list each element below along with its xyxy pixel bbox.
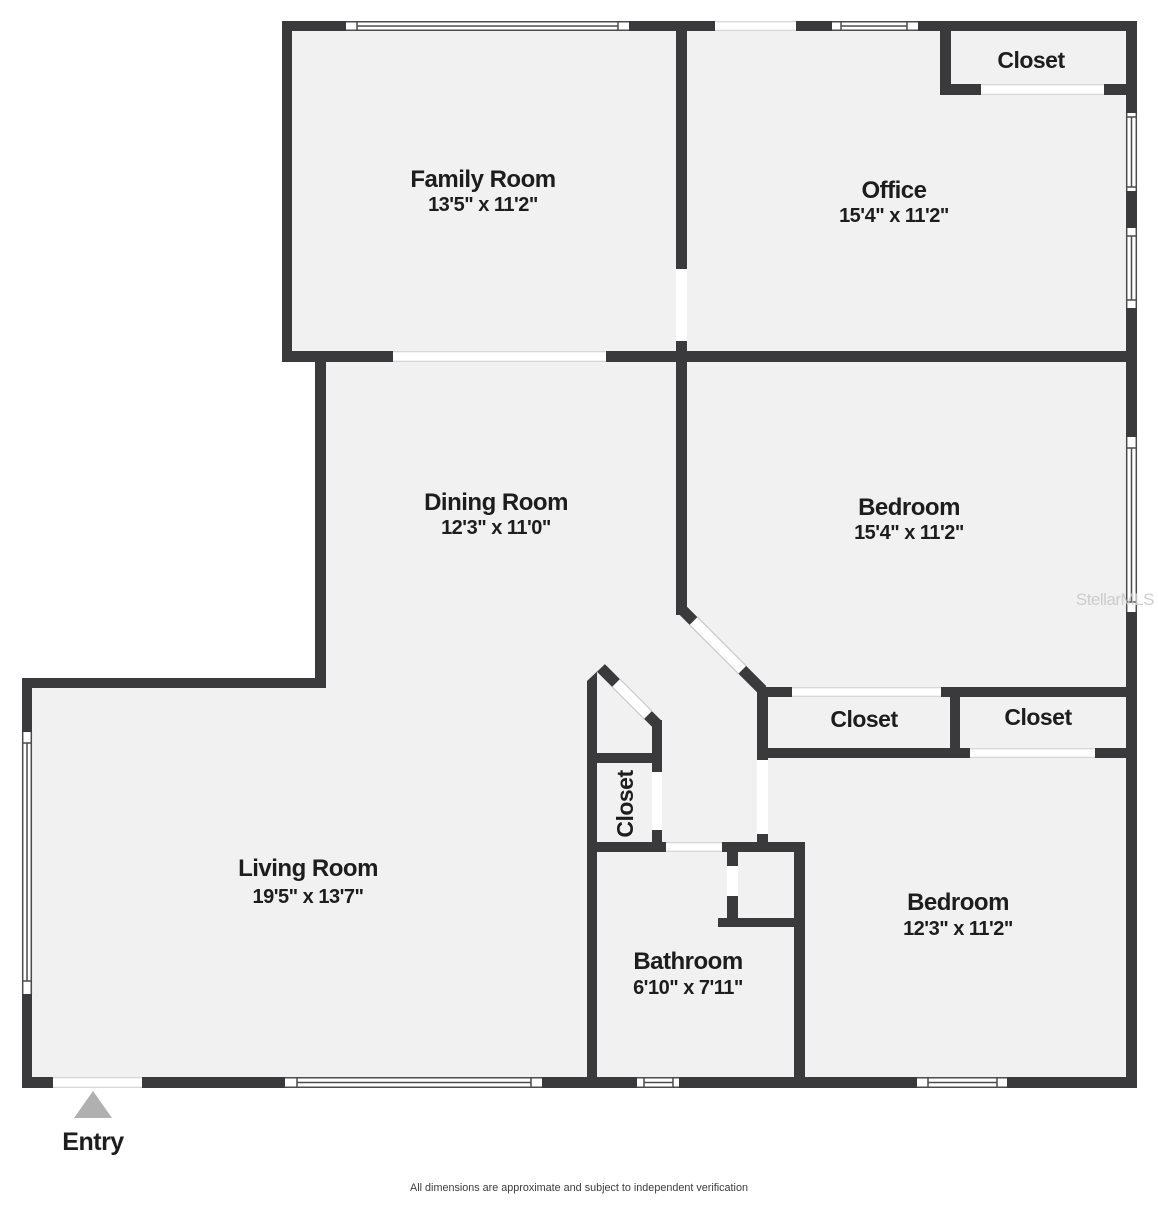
svg-text:Closet: Closet <box>830 706 898 732</box>
svg-text:Entry: Entry <box>62 1128 124 1156</box>
svg-text:All dimensions are approximate: All dimensions are approximate and subje… <box>410 1182 748 1194</box>
svg-text:Office: Office <box>861 177 926 204</box>
svg-text:Bathroom: Bathroom <box>633 948 742 975</box>
svg-text:15'4" x 11'2": 15'4" x 11'2" <box>854 522 964 544</box>
svg-text:Closet: Closet <box>1004 704 1072 730</box>
svg-text:Closet: Closet <box>997 47 1065 73</box>
svg-text:6'10" x 7'11": 6'10" x 7'11" <box>633 977 743 999</box>
svg-text:Bedroom: Bedroom <box>907 889 1009 916</box>
svg-text:12'3" x 11'0": 12'3" x 11'0" <box>441 517 551 539</box>
svg-text:Family Room: Family Room <box>410 166 555 193</box>
svg-text:Living Room: Living Room <box>238 855 378 882</box>
svg-text:StellarMLS: StellarMLS <box>1076 590 1154 609</box>
svg-text:Dining Room: Dining Room <box>424 489 568 516</box>
svg-text:Closet: Closet <box>612 770 638 838</box>
svg-text:13'5" x 11'2": 13'5" x 11'2" <box>428 194 538 216</box>
svg-text:19'5" x 13'7": 19'5" x 13'7" <box>253 886 364 908</box>
svg-text:15'4" x 11'2": 15'4" x 11'2" <box>839 205 949 227</box>
svg-text:12'3" x 11'2": 12'3" x 11'2" <box>903 918 1013 940</box>
svg-text:Bedroom: Bedroom <box>858 494 960 521</box>
